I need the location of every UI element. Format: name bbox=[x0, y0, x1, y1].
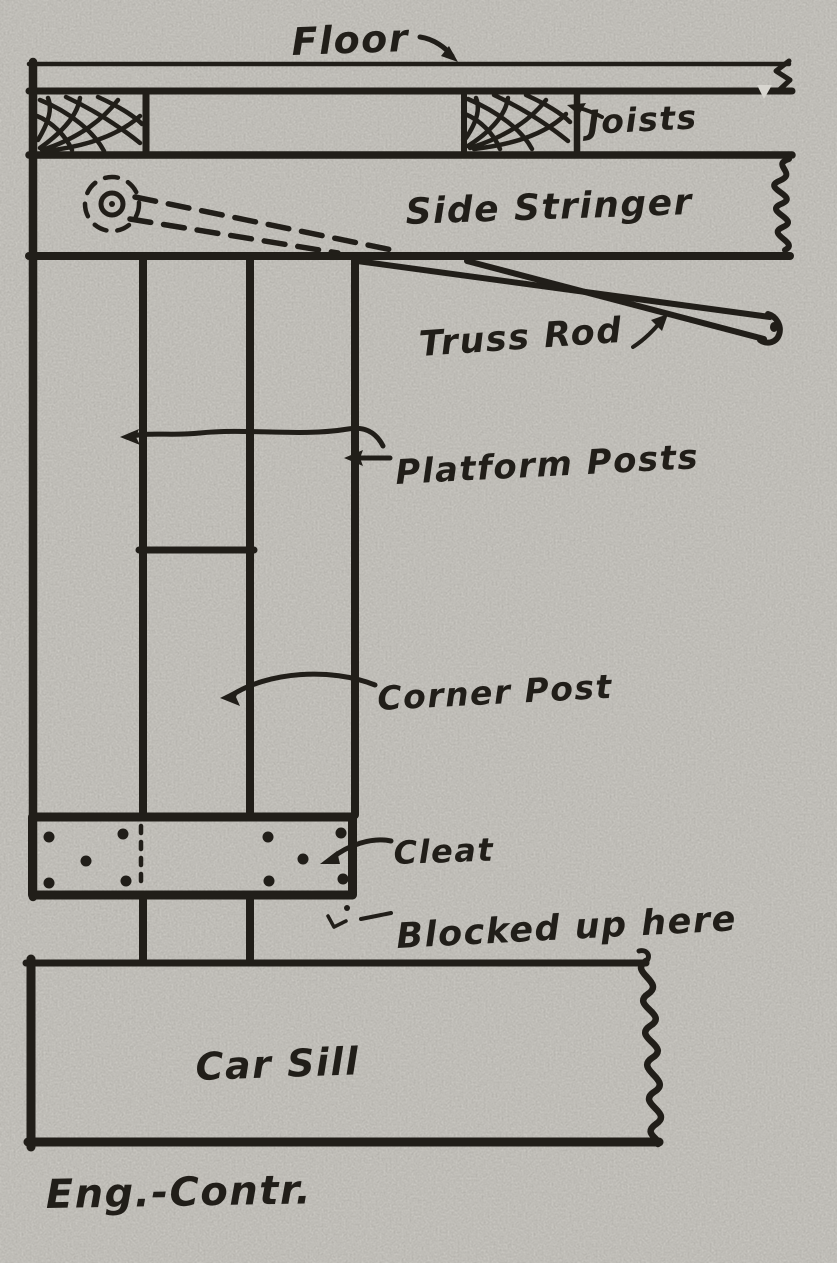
bolt-dot bbox=[121, 876, 132, 887]
bolt-dot bbox=[264, 876, 275, 887]
bolt-dot bbox=[81, 856, 92, 867]
bolt-dot bbox=[298, 854, 309, 865]
cleat-label: Cleat bbox=[393, 831, 495, 872]
floor-label: Floor bbox=[291, 16, 411, 64]
car-platform-framing-diagram: Floor Joists bbox=[0, 0, 837, 1263]
truss-rod-tip-eye bbox=[770, 322, 778, 332]
scanned-diagram-page: Floor Joists bbox=[0, 0, 837, 1263]
bolt-dot bbox=[336, 828, 347, 839]
bolt-dot bbox=[338, 874, 349, 885]
joists-label: Joists bbox=[580, 97, 698, 142]
bolt-dot bbox=[44, 832, 55, 843]
rod-washer-center-dot bbox=[109, 201, 115, 207]
bolt-dot bbox=[118, 829, 129, 840]
publication-credit: Eng.-Contr. bbox=[45, 1167, 312, 1218]
bolt-dot bbox=[44, 878, 55, 889]
bolt-dot bbox=[263, 832, 274, 843]
blocked-up-dot-mark bbox=[344, 905, 350, 911]
paper-texture bbox=[0, 0, 837, 1263]
car-sill-label: Car Sill bbox=[195, 1039, 360, 1089]
